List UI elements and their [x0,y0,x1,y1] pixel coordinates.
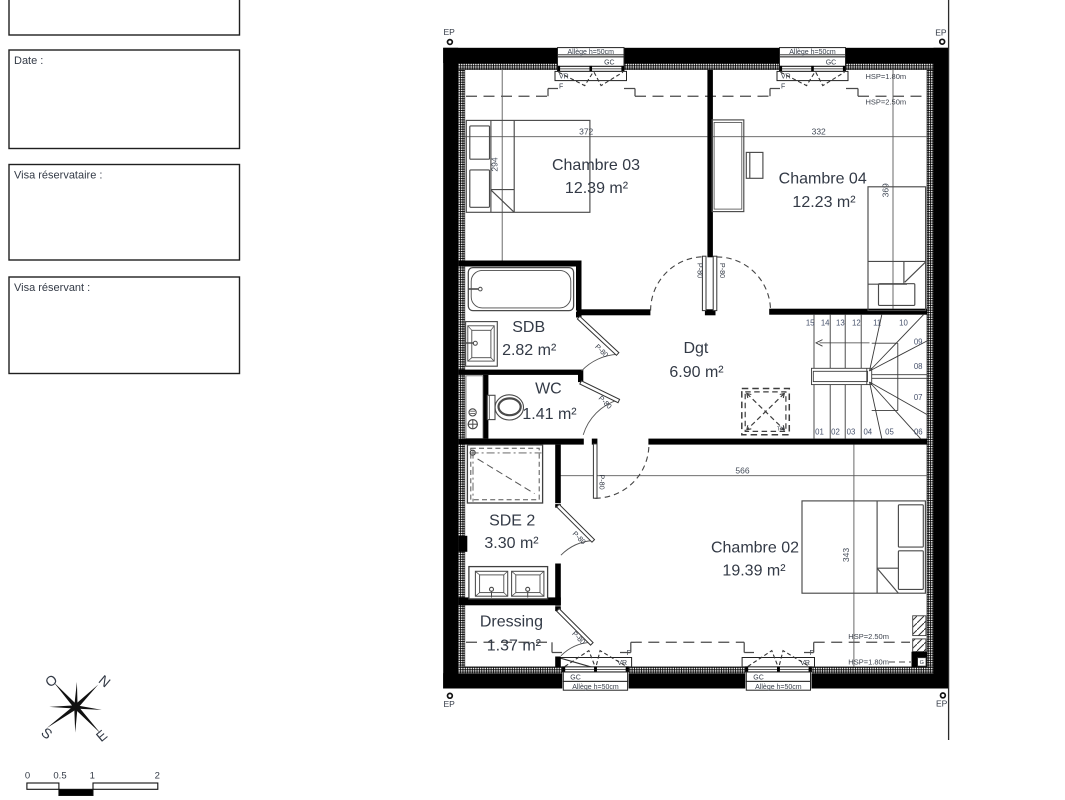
svg-text:WC: WC [535,380,562,397]
svg-text:6.90 m²: 6.90 m² [669,364,724,381]
svg-text:369: 369 [880,183,890,197]
svg-text:1: 1 [90,770,95,781]
svg-text:Chambre 04: Chambre 04 [779,170,867,187]
svg-text:343: 343 [841,548,851,562]
svg-text:09: 09 [914,338,923,347]
svg-text:SDE 2: SDE 2 [489,512,535,529]
svg-text:1.41 m²: 1.41 m² [522,406,577,423]
svg-text:02: 02 [831,428,840,437]
svg-text:05: 05 [885,428,894,437]
svg-text:07: 07 [914,393,923,402]
svg-text:566: 566 [735,465,749,475]
svg-text:EP: EP [936,699,948,709]
svg-text:SDB: SDB [512,319,545,336]
svg-text:2.82 m²: 2.82 m² [502,342,557,359]
svg-text:Date :: Date : [14,55,43,67]
svg-text:Allège h=50cm: Allège h=50cm [567,49,614,56]
svg-text:Allège h=50cm: Allège h=50cm [755,684,802,691]
svg-text:19.39 m²: 19.39 m² [722,562,786,579]
svg-text:GC: GC [570,675,581,682]
svg-text:HSP=1.80m: HSP=1.80m [848,657,889,666]
svg-text:N: N [96,672,114,691]
svg-text:Allège h=50cm: Allège h=50cm [572,684,619,691]
svg-text:EP: EP [444,699,456,709]
svg-text:12: 12 [852,319,861,328]
svg-text:372: 372 [579,126,593,136]
svg-text:13: 13 [836,319,845,328]
svg-text:2: 2 [155,770,160,781]
svg-text:0: 0 [25,770,30,781]
svg-text:11: 11 [873,319,881,328]
svg-text:332: 332 [812,126,826,136]
svg-text:12.23 m²: 12.23 m² [792,194,856,211]
svg-text:06: 06 [914,428,923,437]
svg-text:P-80: P-80 [598,474,607,489]
svg-text:HSP=2.50m: HSP=2.50m [848,632,889,641]
svg-text:P-80: P-80 [570,629,587,646]
svg-text:GC: GC [604,60,615,67]
svg-text:HSP=2.50m: HSP=2.50m [866,98,907,107]
svg-text:04: 04 [863,428,872,437]
svg-text:08: 08 [914,362,923,371]
svg-text:S: S [38,724,55,742]
svg-text:EP: EP [444,27,456,37]
svg-text:Allège h=50cm: Allège h=50cm [789,49,836,56]
svg-text:P-80: P-80 [718,263,727,278]
svg-text:Visa réservant :: Visa réservant : [14,282,90,294]
svg-text:O: O [42,671,61,690]
svg-text:Visa réservataire :: Visa réservataire : [14,170,102,182]
svg-text:E: E [93,726,110,744]
svg-text:01: 01 [815,428,824,437]
svg-text:G: G [920,660,924,666]
svg-text:3.30 m²: 3.30 m² [484,535,539,552]
svg-text:F: F [781,83,785,90]
svg-text:15: 15 [806,319,815,328]
svg-text:GC: GC [826,60,837,67]
svg-text:03: 03 [847,428,856,437]
svg-text:EP: EP [935,27,947,37]
svg-text:14: 14 [821,319,830,328]
svg-text:0.5: 0.5 [53,770,66,781]
svg-text:Chambre 02: Chambre 02 [711,539,799,556]
svg-text:Chambre 03: Chambre 03 [552,157,640,174]
svg-text:P-80: P-80 [696,263,705,278]
svg-text:Dressing: Dressing [480,613,543,630]
svg-text:GC: GC [753,675,764,682]
svg-text:HSP=1.80m: HSP=1.80m [866,72,907,81]
svg-text:Dgt: Dgt [683,340,708,357]
svg-text:10: 10 [899,319,908,328]
svg-text:TN: TN [777,427,784,433]
svg-text:F: F [559,83,563,90]
svg-text:1.37 m²: 1.37 m² [487,637,542,654]
svg-text:12.39 m²: 12.39 m² [565,180,629,197]
